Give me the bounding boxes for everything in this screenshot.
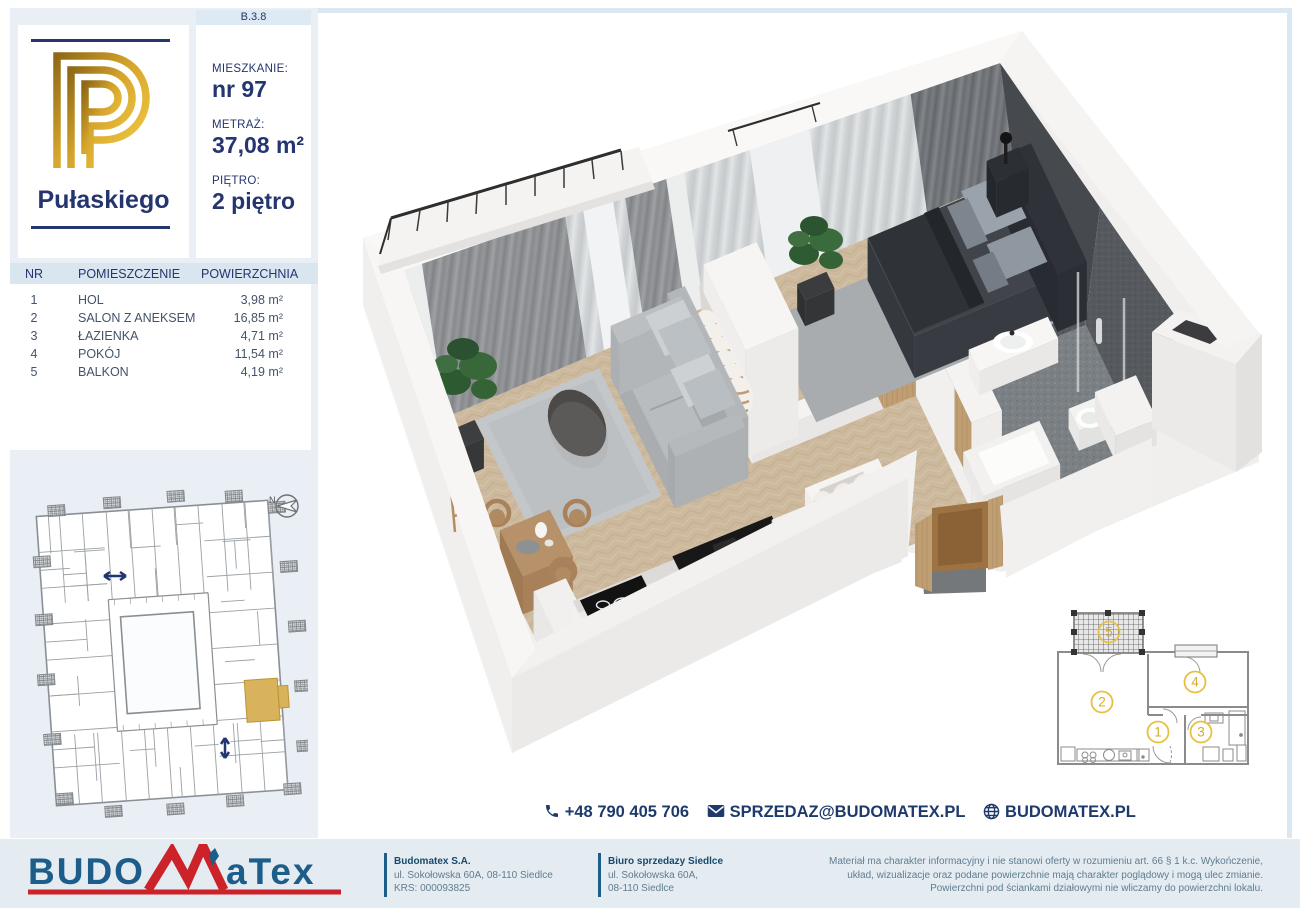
svg-text:BUDO: BUDO	[28, 851, 145, 892]
svg-text:N: N	[269, 495, 276, 505]
svg-text:2: 2	[1098, 695, 1106, 710]
svg-text:4: 4	[1191, 675, 1199, 690]
svg-text:1: 1	[1154, 725, 1162, 740]
svg-text:aTex: aTex	[226, 851, 316, 892]
svg-text:5: 5	[1105, 625, 1113, 640]
svg-text:3: 3	[1197, 725, 1205, 740]
